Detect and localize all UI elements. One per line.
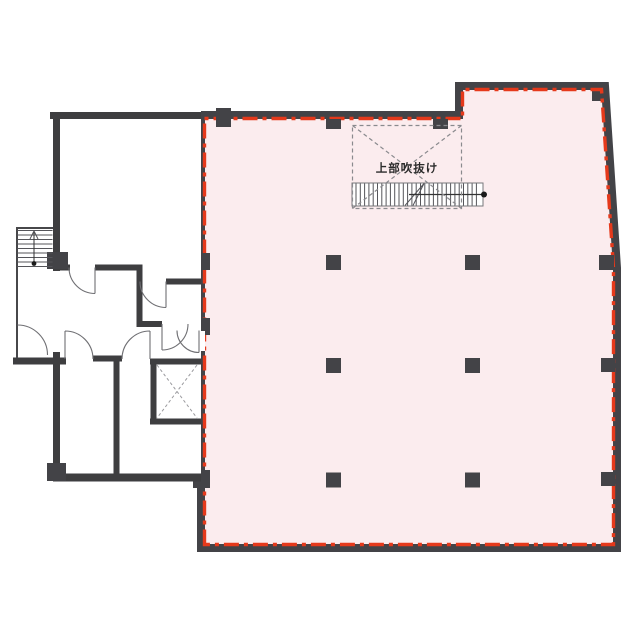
- adjacent-building: [13, 111, 205, 481]
- floor-plan-page: 上部吹抜け: [0, 0, 640, 640]
- wall-post: [599, 255, 614, 270]
- stair-start-marker: [32, 261, 37, 266]
- interior-staircase: [352, 183, 487, 206]
- column: [465, 358, 480, 373]
- column: [326, 358, 341, 373]
- floor-plan-canvas: 上部吹抜け: [0, 0, 640, 640]
- wall-post: [47, 463, 66, 481]
- column: [465, 473, 480, 488]
- column: [326, 255, 341, 270]
- wall-post: [433, 119, 448, 129]
- ceiling-void-label: 上部吹抜け: [376, 161, 439, 175]
- wall-post: [601, 358, 615, 372]
- wall-post: [216, 108, 231, 127]
- column: [465, 255, 480, 270]
- stair-start-marker: [481, 192, 487, 198]
- wall-post: [601, 472, 615, 486]
- door-opening-gap: [196, 331, 205, 351]
- wall-post: [326, 119, 341, 129]
- building-room-fill: [50, 111, 201, 481]
- highlighted-area: [201, 86, 617, 548]
- highlighted-zone-fill: [201, 86, 617, 548]
- column: [326, 473, 341, 488]
